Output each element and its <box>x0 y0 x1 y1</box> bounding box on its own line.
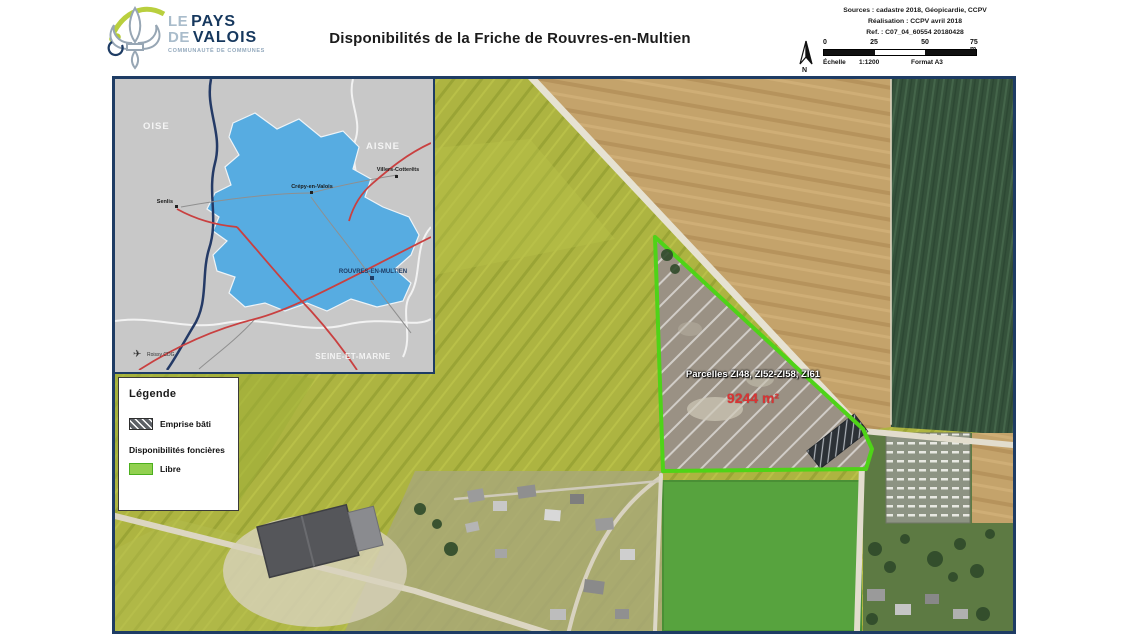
scale-tick: 25 <box>870 39 878 46</box>
north-label: N <box>802 67 807 74</box>
airport-label: Roissy CDG <box>147 352 175 358</box>
scale-word: Échelle <box>823 59 846 66</box>
format-label: Format A3 <box>911 59 943 66</box>
legend-section-title: Disponibilités foncières <box>129 445 228 455</box>
parcel-area-label: 9244 m² <box>613 390 893 406</box>
airplane-icon: ✈ <box>133 349 141 360</box>
legend-title: Légende <box>129 388 228 400</box>
scale-tick: 75 m <box>970 39 985 53</box>
sources-line: Sources : cadastre 2018, Géopicardie, CC… <box>836 5 994 16</box>
scale-tick: 50 <box>921 39 929 46</box>
highlighted-town-label: ROUVRES-EN-MULTIEN <box>339 269 407 275</box>
scale-ticks: 0 25 50 75 m <box>823 39 985 48</box>
department-label-aisne: AISNE <box>366 141 400 152</box>
department-label-oise: OISE <box>143 121 170 132</box>
town-label-senlis: Senlis <box>157 199 173 205</box>
built-swatch <box>129 418 153 430</box>
north-arrow-icon <box>797 40 815 68</box>
scale-bar <box>823 49 977 56</box>
free-swatch <box>129 463 153 475</box>
scale-tick: 0 <box>823 39 827 46</box>
legend-item-free: Libre <box>129 463 228 475</box>
scale-bar-block: N 0 25 50 75 m Échelle 1:1200 Format A3 <box>797 38 997 76</box>
page-title: Disponibilités de la Friche de Rouvres-e… <box>310 30 710 47</box>
logo-word-pays: PAYS <box>191 13 236 30</box>
legend-box: Légende Emprise bâti Disponibilités fonc… <box>118 377 239 511</box>
legend-label-built: Emprise bâti <box>160 419 211 429</box>
main-map-frame: OISE AISNE SEINE-ET-MARNE Senlis Crépy-e… <box>112 76 1016 634</box>
logo-word-de: DE <box>168 29 190 46</box>
legend-item-built: Emprise bâti <box>129 418 228 430</box>
logo-word-le: LE <box>168 13 188 30</box>
town-label-crepy: Crépy-en-Valois <box>291 184 333 190</box>
sources-line: Réalisation : CCPV avril 2018 <box>836 16 994 27</box>
pays-de-valois-logo: LEPAYS DEVALOIS COMMUNAUTÉ DE COMMUNES <box>104 2 265 72</box>
logo-subtitle: COMMUNAUTÉ DE COMMUNES <box>168 48 265 54</box>
inset-location-map: OISE AISNE SEINE-ET-MARNE Senlis Crépy-e… <box>115 79 435 374</box>
map-sheet: LEPAYS DEVALOIS COMMUNAUTÉ DE COMMUNES D… <box>0 0 1130 636</box>
fleur-de-lis-icon <box>104 2 166 72</box>
scale-value: 1:1200 <box>859 59 879 66</box>
parcel-ids-label: Parcelles ZI48, ZI52-ZI58, ZI61 <box>613 369 893 380</box>
legend-label-free: Libre <box>160 464 181 474</box>
sources-line: Ref. : C07_04_60554 20180428 <box>836 27 994 38</box>
sources-block: Sources : cadastre 2018, Géopicardie, CC… <box>836 5 994 39</box>
logo-word-valois: VALOIS <box>193 29 257 46</box>
town-label-villers: Villers-Cotterêts <box>377 167 419 173</box>
department-label-seine-et-marne: SEINE-ET-MARNE <box>315 352 391 361</box>
